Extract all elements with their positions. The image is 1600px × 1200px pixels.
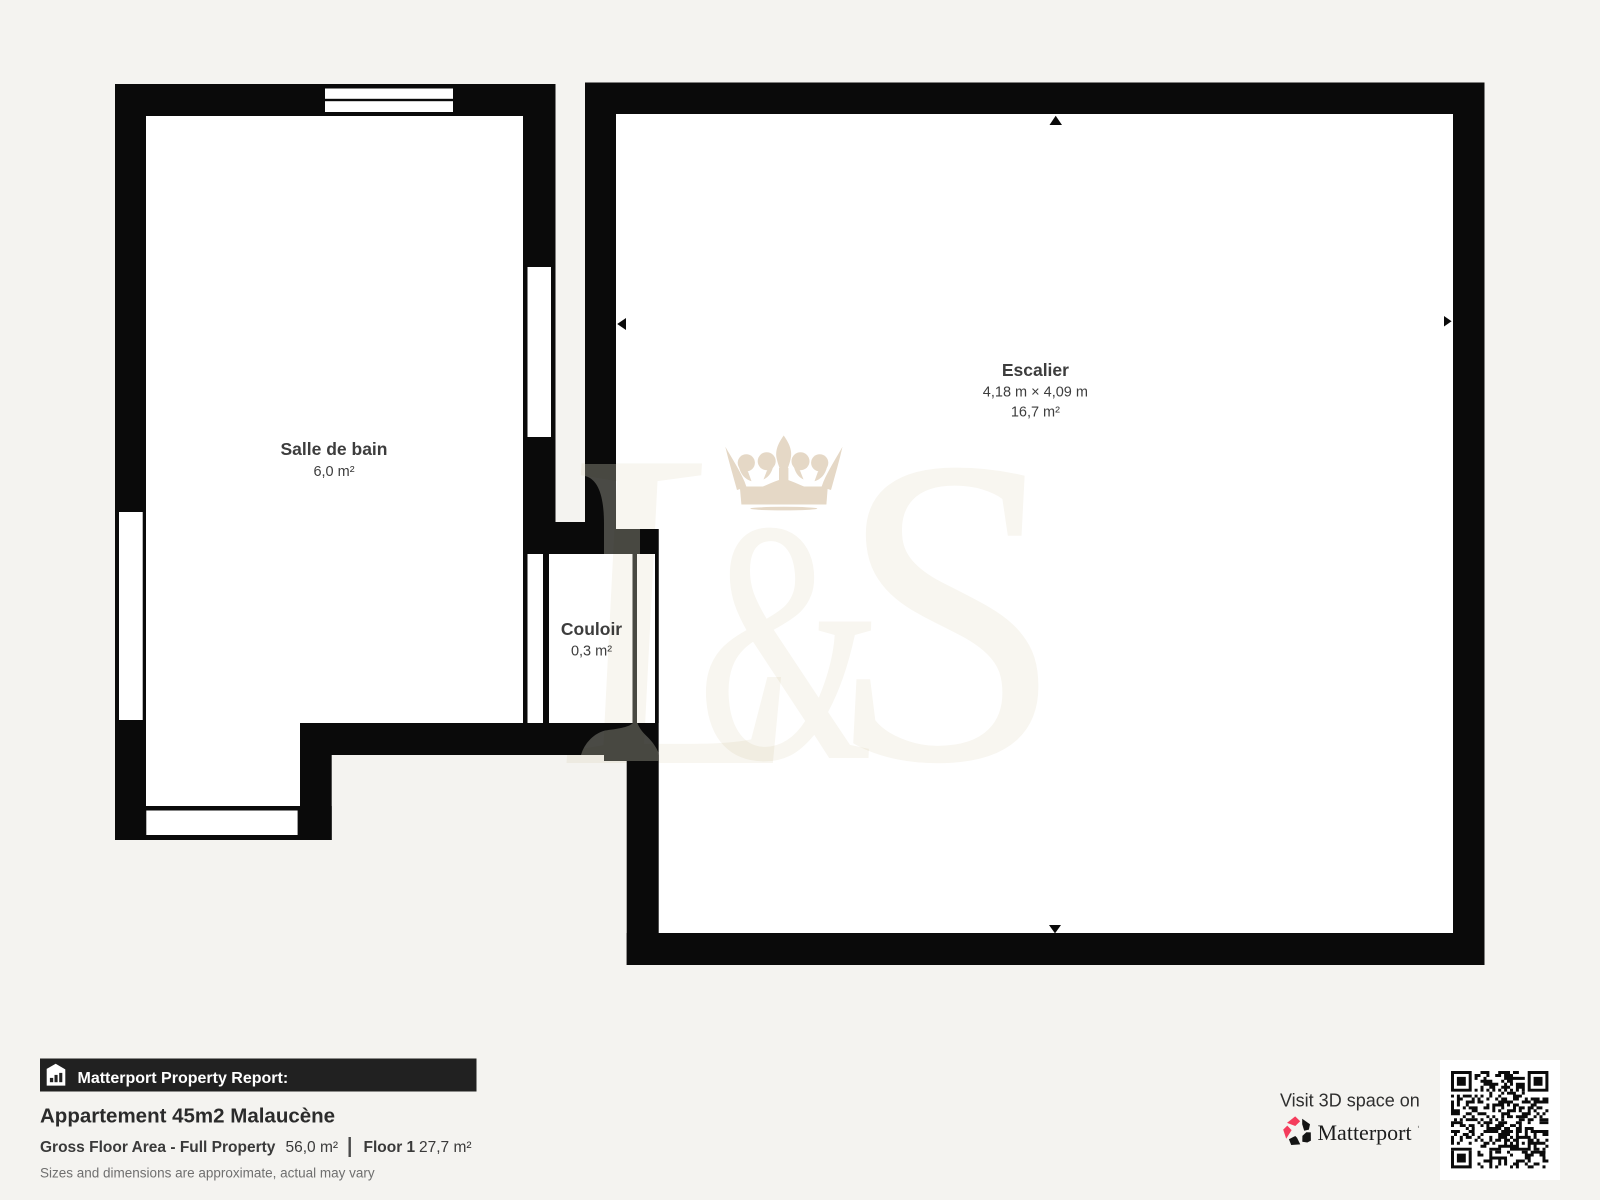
svg-text:Matterport Property Report:: Matterport Property Report: (78, 1070, 289, 1087)
svg-text:27,7 m²: 27,7 m² (419, 1139, 472, 1156)
svg-text:Floor 1: Floor 1 (364, 1139, 416, 1156)
svg-text:6,0 m²: 6,0 m² (313, 464, 354, 480)
svg-text:Sizes and dimensions are appro: Sizes and dimensions are approximate, ac… (40, 1166, 375, 1181)
svg-text:Salle de bain: Salle de bain (281, 439, 388, 459)
svg-text:Appartement 45m2 Malaucène: Appartement 45m2 Malaucène (40, 1105, 335, 1128)
svg-text:Visit 3D space on: Visit 3D space on (1280, 1091, 1420, 1111)
svg-text:Matterport: Matterport (1318, 1120, 1412, 1145)
svg-text:Gross Floor Area - Full Proper: Gross Floor Area - Full Property (40, 1139, 276, 1156)
svg-text:‹: ‹ (1418, 1124, 1420, 1130)
svg-text:56,0 m²: 56,0 m² (286, 1139, 339, 1156)
